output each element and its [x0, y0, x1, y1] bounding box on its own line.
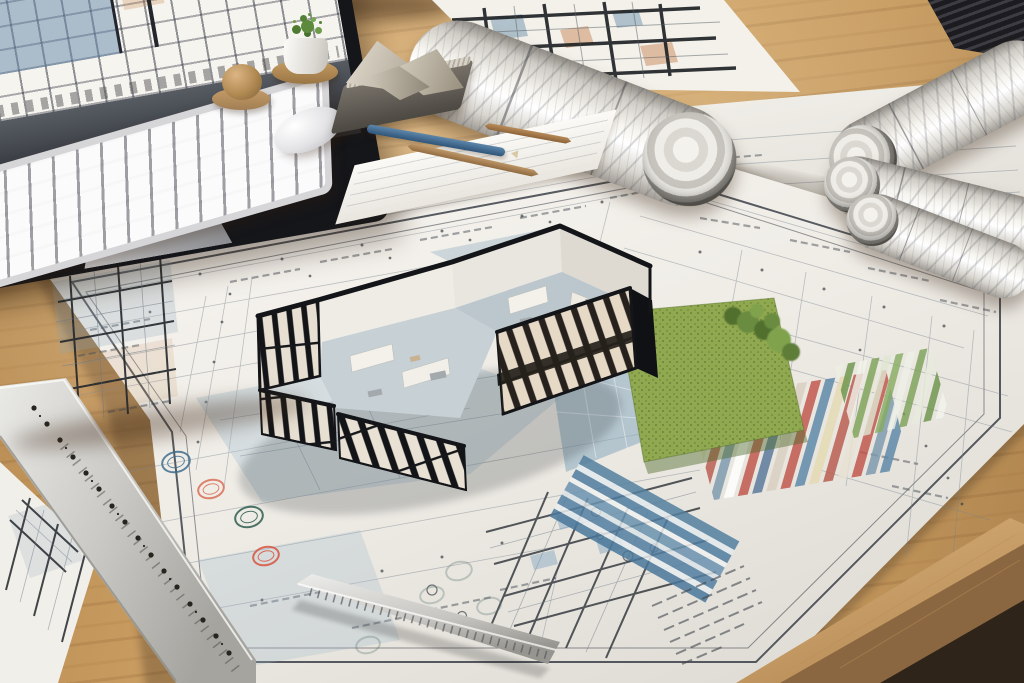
plant-pot — [284, 38, 328, 74]
plant-foliage — [286, 10, 326, 42]
desk-scene — [0, 0, 1024, 683]
bronze-knob — [222, 64, 262, 100]
